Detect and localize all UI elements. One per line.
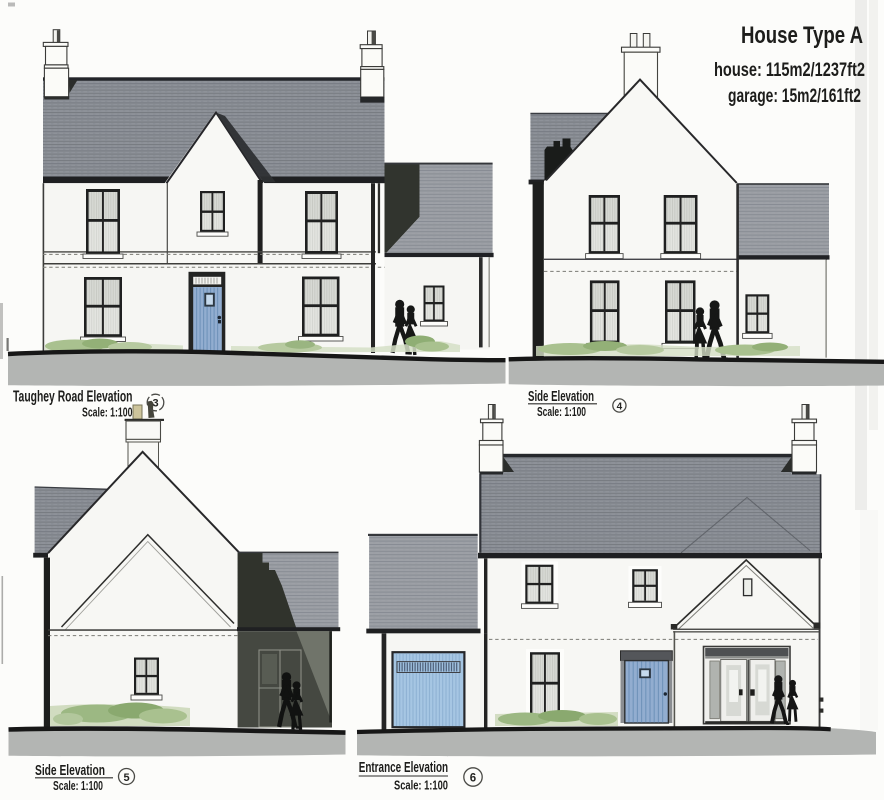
svg-text:house: 115m2/1237ft2: house: 115m2/1237ft2 bbox=[714, 60, 865, 81]
svg-text:Taughey Road Elevation: Taughey Road Elevation bbox=[13, 389, 133, 406]
svg-text:Entrance Elevation: Entrance Elevation bbox=[359, 760, 448, 776]
svg-text:5: 5 bbox=[123, 772, 129, 784]
svg-text:House Type A: House Type A bbox=[741, 22, 863, 49]
svg-text:3: 3 bbox=[152, 398, 158, 410]
svg-text:Scale: 1:100: Scale: 1:100 bbox=[82, 405, 133, 420]
svg-text:6: 6 bbox=[470, 773, 476, 785]
svg-text:Scale: 1:100: Scale: 1:100 bbox=[53, 778, 103, 793]
svg-text:Scale: 1:100: Scale: 1:100 bbox=[394, 778, 448, 793]
svg-text:Side Elevation: Side Elevation bbox=[528, 389, 594, 405]
svg-text:Scale: 1:100: Scale: 1:100 bbox=[537, 405, 586, 419]
svg-text:Side Elevation: Side Elevation bbox=[35, 763, 105, 779]
svg-text:garage: 15m2/161ft2: garage: 15m2/161ft2 bbox=[728, 86, 861, 107]
svg-text:4: 4 bbox=[617, 402, 623, 413]
